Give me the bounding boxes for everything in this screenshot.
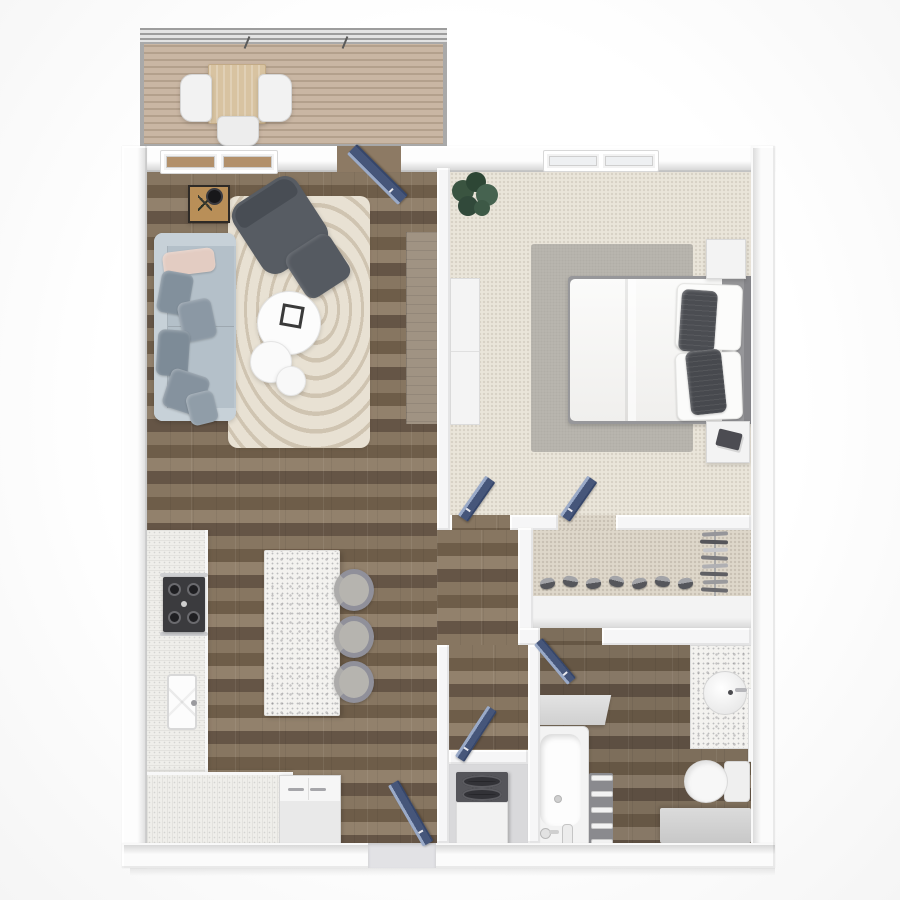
wall-exterior-left bbox=[122, 146, 147, 868]
floor-plan bbox=[0, 0, 900, 900]
fridge-door-seam bbox=[308, 778, 309, 800]
kitchen-sink bbox=[167, 674, 197, 730]
patio-chair-right bbox=[258, 74, 292, 122]
entry-threshold bbox=[368, 843, 436, 868]
potted-plant bbox=[450, 170, 500, 218]
sink-faucet bbox=[191, 700, 197, 706]
balcony-railing bbox=[140, 28, 447, 42]
dark-accent-pillow bbox=[685, 348, 727, 415]
nightstand-bottom bbox=[706, 421, 750, 463]
sink-faucet bbox=[735, 688, 747, 692]
wall-hall-laundry bbox=[437, 645, 449, 843]
coffee-table-small bbox=[276, 366, 306, 396]
coffee-table-decor bbox=[279, 303, 304, 328]
towel-shelf bbox=[589, 773, 613, 853]
alcove-floor bbox=[449, 645, 528, 750]
bar-stool bbox=[334, 569, 374, 611]
toilet-bowl bbox=[684, 760, 728, 803]
kitchen-island bbox=[264, 550, 340, 716]
hanging-clothes bbox=[700, 532, 730, 596]
patio-chair-left bbox=[180, 74, 212, 122]
window-pane bbox=[547, 154, 599, 168]
refrigerator bbox=[279, 775, 341, 851]
building-shadow bbox=[130, 868, 775, 876]
dryer-drum bbox=[462, 788, 502, 801]
wall-bathroom-west bbox=[528, 645, 540, 843]
range-rail-bottom bbox=[160, 632, 208, 636]
bar-stool bbox=[334, 661, 374, 703]
bathroom-door-threshold bbox=[540, 628, 602, 645]
patio-bench bbox=[217, 116, 259, 146]
sofa-arm-top bbox=[154, 233, 236, 246]
window-pane bbox=[221, 154, 274, 170]
range-cooktop bbox=[163, 577, 205, 632]
bar-stool bbox=[334, 616, 374, 658]
wall-exterior-right bbox=[751, 146, 775, 868]
book bbox=[715, 428, 742, 450]
living-room-window bbox=[160, 150, 278, 174]
vanity bbox=[690, 645, 752, 749]
fridge-handle bbox=[310, 788, 326, 791]
wall-closet-bath-b bbox=[602, 628, 751, 645]
wall-exterior-bottom bbox=[122, 843, 775, 868]
window-pane bbox=[603, 154, 655, 168]
washer-dryer bbox=[456, 772, 508, 852]
tub-spout bbox=[549, 830, 559, 834]
window-pane bbox=[164, 154, 217, 170]
wall-living-bedroom bbox=[437, 168, 450, 530]
bath-step-bench bbox=[660, 808, 751, 843]
hallway-floor bbox=[437, 530, 518, 645]
table-lamp bbox=[206, 188, 223, 205]
nightstand-top bbox=[706, 239, 746, 279]
washer-drum bbox=[462, 775, 502, 788]
tub-basin bbox=[540, 734, 581, 826]
dresser bbox=[450, 278, 480, 425]
balcony bbox=[140, 28, 447, 148]
fridge-handle bbox=[288, 788, 304, 791]
sink-drain bbox=[728, 690, 733, 695]
kitchen-counter-bottom bbox=[147, 772, 293, 846]
duvet-highlight bbox=[628, 279, 636, 421]
console-table bbox=[406, 232, 438, 424]
vanity-sink bbox=[703, 671, 747, 715]
tub-drain bbox=[554, 795, 562, 803]
closet-shelf bbox=[533, 596, 751, 628]
bedroom-window bbox=[543, 150, 659, 172]
dark-accent-pillow bbox=[678, 289, 718, 353]
range-knob bbox=[181, 601, 187, 607]
wall-bedroom-south-b bbox=[616, 515, 751, 530]
bath-ledge bbox=[529, 695, 611, 725]
